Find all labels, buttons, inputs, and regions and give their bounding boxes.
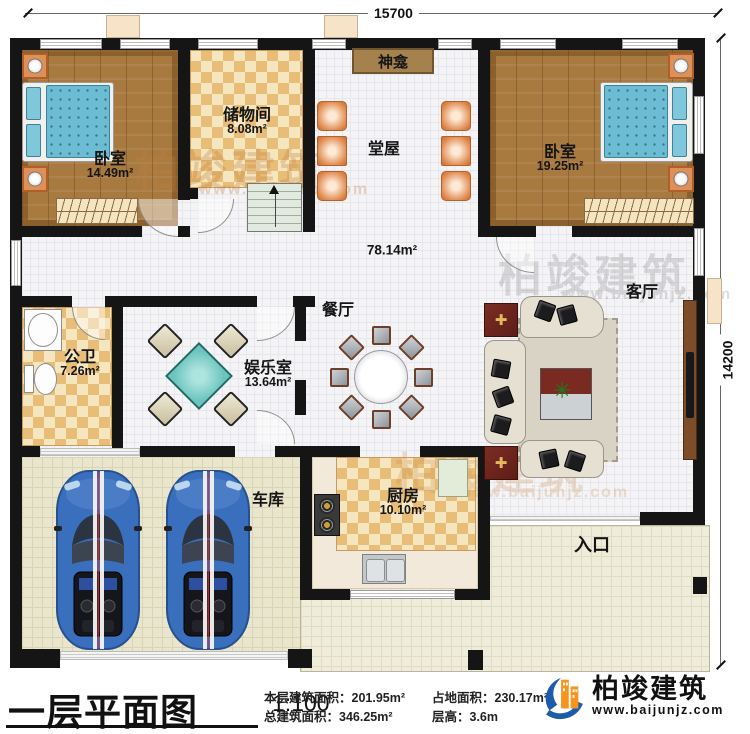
wardrobe xyxy=(56,198,138,224)
nightstand xyxy=(22,53,48,79)
stairs-arrow-icon xyxy=(269,185,279,194)
hall-chair xyxy=(317,171,347,201)
wall xyxy=(140,446,235,457)
window xyxy=(438,39,472,49)
wall xyxy=(640,512,705,525)
wall xyxy=(10,446,40,457)
window xyxy=(622,39,678,49)
ac-unit xyxy=(324,15,358,38)
bed-pillow xyxy=(672,124,687,157)
bed-pillow xyxy=(26,124,41,157)
sofa-bottom xyxy=(520,440,604,478)
bed-mattress xyxy=(604,85,668,158)
bedroom1-area: 14.49m² xyxy=(87,166,134,180)
dining-table xyxy=(354,350,408,404)
hall-chair xyxy=(441,171,471,201)
ac-unit xyxy=(707,278,722,324)
side-table: ✚ xyxy=(484,303,518,337)
wall xyxy=(303,38,315,232)
window xyxy=(350,590,455,599)
dining-chair xyxy=(330,368,349,387)
brand-logo-icon xyxy=(540,671,586,721)
wall xyxy=(300,589,350,600)
wall xyxy=(178,188,198,199)
brand-url: www.baijunjz.com xyxy=(592,703,724,717)
wall xyxy=(288,649,312,668)
stat-land-area: 占地面积：230.17m² xyxy=(432,687,548,706)
title-block: 一层平面图 1:100 本层建筑面积：201.95m² 占地面积：230.17m… xyxy=(0,678,750,734)
hall-garage-threshold xyxy=(40,448,140,456)
title-underline xyxy=(6,725,258,728)
kitchen-area: 10.10m² xyxy=(380,503,427,517)
bedroom2-area: 19.25m² xyxy=(537,159,584,173)
side-table: ✚ xyxy=(484,446,518,480)
window xyxy=(40,39,102,49)
nightstand xyxy=(668,53,694,79)
hall-chair xyxy=(441,101,471,131)
dimension-tick xyxy=(716,33,726,43)
wall xyxy=(572,226,705,237)
right-dimension-label: 14200 xyxy=(719,335,735,386)
wall xyxy=(455,589,490,600)
stat-floor-area: 本层建筑面积：201.95m² xyxy=(264,687,405,706)
wall xyxy=(22,296,72,307)
sofa-cushion xyxy=(491,359,512,380)
wall xyxy=(478,38,490,232)
dining-chair xyxy=(372,410,391,429)
hall-chair xyxy=(317,101,347,131)
bed-pillow xyxy=(26,87,41,120)
hall-side-table xyxy=(317,136,347,166)
window xyxy=(694,96,704,154)
porch-pillar xyxy=(693,577,707,594)
window xyxy=(198,39,258,49)
toilet-tank xyxy=(24,365,34,393)
wall xyxy=(178,38,190,200)
shrine-label: 神龛 xyxy=(378,51,408,72)
wall xyxy=(112,296,123,456)
dining-label: 餐厅 xyxy=(322,296,354,320)
living-label: 客厅 xyxy=(626,278,658,302)
nightstand xyxy=(22,166,48,192)
window xyxy=(500,39,556,49)
wall xyxy=(275,446,360,457)
dining-chair xyxy=(372,326,391,345)
stove-burner xyxy=(319,498,335,514)
stat-total-area: 总建筑面积：346.25m² xyxy=(264,706,393,725)
wall xyxy=(478,226,536,237)
bed-pillow xyxy=(672,87,687,120)
wall xyxy=(295,296,306,341)
car xyxy=(162,468,254,652)
kitchen-sink-icon xyxy=(362,554,406,584)
dining-chair xyxy=(414,368,433,387)
car xyxy=(52,468,144,652)
top-dimension-label: 15700 xyxy=(368,5,419,21)
bathroom-area: 7.26m² xyxy=(60,364,100,378)
wall xyxy=(105,296,257,307)
brand-logo: 柏竣建筑 www.baijunjz.com xyxy=(540,666,750,726)
hall-area: 78.14m² xyxy=(367,243,417,258)
stat-floor-height: 层高：3.6m xyxy=(432,706,498,725)
stove-burner xyxy=(319,517,335,533)
shrine: 神龛 xyxy=(352,48,434,74)
hall-side-table xyxy=(441,136,471,166)
brand-name: 柏竣建筑 xyxy=(592,676,724,703)
window xyxy=(312,39,346,49)
wall xyxy=(178,226,190,237)
tangwu-label: 堂屋 xyxy=(368,135,400,159)
wall xyxy=(10,226,142,237)
ac-unit xyxy=(106,15,140,38)
garage-door-sill xyxy=(60,651,288,660)
porch-pillar xyxy=(468,650,483,670)
wall xyxy=(300,446,312,600)
window xyxy=(120,39,170,49)
entrance-label: 入口 xyxy=(574,531,610,557)
nightstand xyxy=(668,166,694,192)
window xyxy=(694,228,704,276)
bathroom-sink-icon xyxy=(28,313,58,347)
entertainment-area: 13.64m² xyxy=(245,375,292,389)
sofa-cushion xyxy=(538,448,559,469)
tv-icon xyxy=(686,352,694,418)
entrance-threshold xyxy=(490,516,640,521)
fridge-icon xyxy=(438,459,468,497)
window xyxy=(11,240,21,286)
exterior-wall-left xyxy=(10,38,22,668)
wardrobe xyxy=(584,198,694,224)
storage-area: 8.08m² xyxy=(227,122,267,136)
garage-label: 车库 xyxy=(252,486,284,510)
wall xyxy=(295,380,306,415)
plant-icon: ✳ xyxy=(553,378,571,404)
toilet-icon xyxy=(34,363,57,395)
floor-plan-page: 15700 14200 柏竣建筑 www.baijunjz.com 柏竣建筑 w… xyxy=(0,0,750,734)
